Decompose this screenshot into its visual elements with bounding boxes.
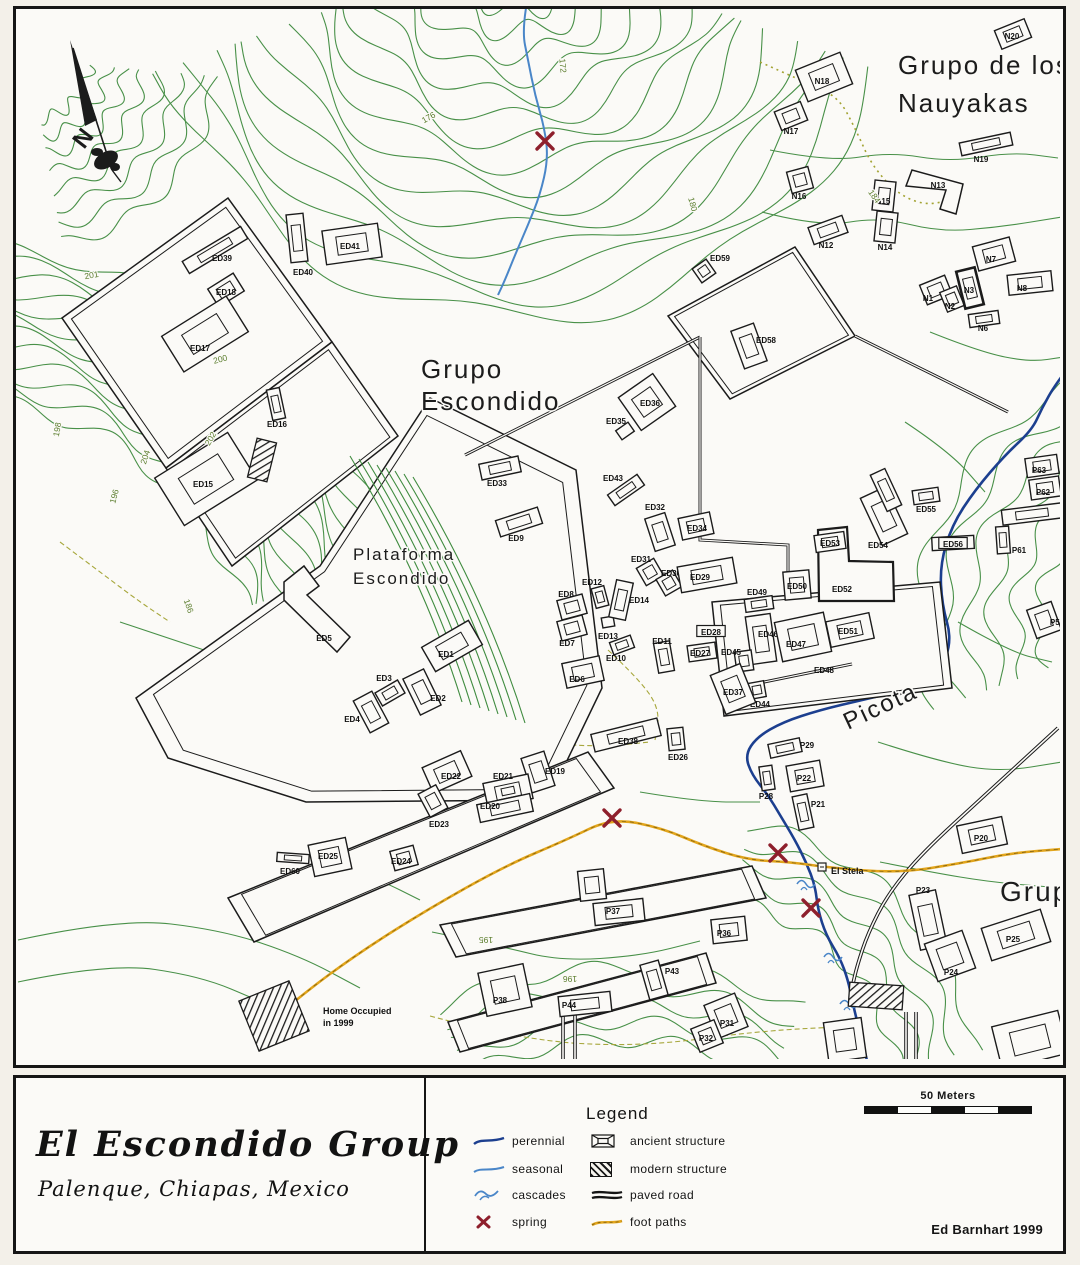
cascades-icon: [472, 1187, 512, 1203]
scale-bar-segments: [864, 1106, 1032, 1114]
legend-block: Legend perennial seasonal cascades: [428, 1078, 1063, 1251]
legend-item-label: ancient structure: [630, 1134, 726, 1148]
legend-item-label: spring: [512, 1215, 547, 1229]
legend-item-spring: spring: [472, 1213, 547, 1231]
legend-item-modern-structure: modern structure: [590, 1160, 727, 1178]
perennial-line-icon: [472, 1134, 512, 1148]
legend-item-seasonal: seasonal: [472, 1160, 563, 1178]
legend-item-label: cascades: [512, 1188, 566, 1202]
seasonal-line-icon: [472, 1162, 512, 1176]
foot-path-icon: [590, 1215, 630, 1229]
modern-structure-icon: [590, 1162, 630, 1177]
legend-item-label: modern structure: [630, 1162, 727, 1176]
page: ED39ED40ED41ED18ED17ED16ED15ED36ED35ED59…: [0, 0, 1080, 1265]
paved-road-icon: [590, 1188, 630, 1202]
title-block: El Escondido Group Palenque, Chiapas, Me…: [16, 1078, 426, 1251]
map-panel: [13, 6, 1066, 1068]
legend-item-cascades: cascades: [472, 1186, 566, 1204]
legend-panel: El Escondido Group Palenque, Chiapas, Me…: [13, 1075, 1066, 1254]
legend-item-ancient-structure: ancient structure: [590, 1132, 726, 1150]
legend-item-label: seasonal: [512, 1162, 563, 1176]
legend-item-label: perennial: [512, 1134, 565, 1148]
map-subtitle: Palenque, Chiapas, Mexico: [38, 1177, 424, 1201]
legend-item-paved-road: paved road: [590, 1186, 694, 1204]
legend-item-foot-paths: foot paths: [590, 1213, 687, 1231]
legend-item-perennial: perennial: [472, 1132, 565, 1150]
scale-bar: 50 Meters: [864, 1090, 1032, 1114]
scale-bar-label: 50 Meters: [864, 1090, 1032, 1102]
map-credit: Ed Barnhart 1999: [931, 1222, 1043, 1237]
map-title: El Escondido Group: [36, 1124, 424, 1165]
legend-heading: Legend: [586, 1104, 649, 1124]
spring-x-icon: [472, 1214, 512, 1230]
legend-item-label: foot paths: [630, 1215, 687, 1229]
ancient-structure-icon: [590, 1133, 630, 1149]
legend-item-label: paved road: [630, 1188, 694, 1202]
